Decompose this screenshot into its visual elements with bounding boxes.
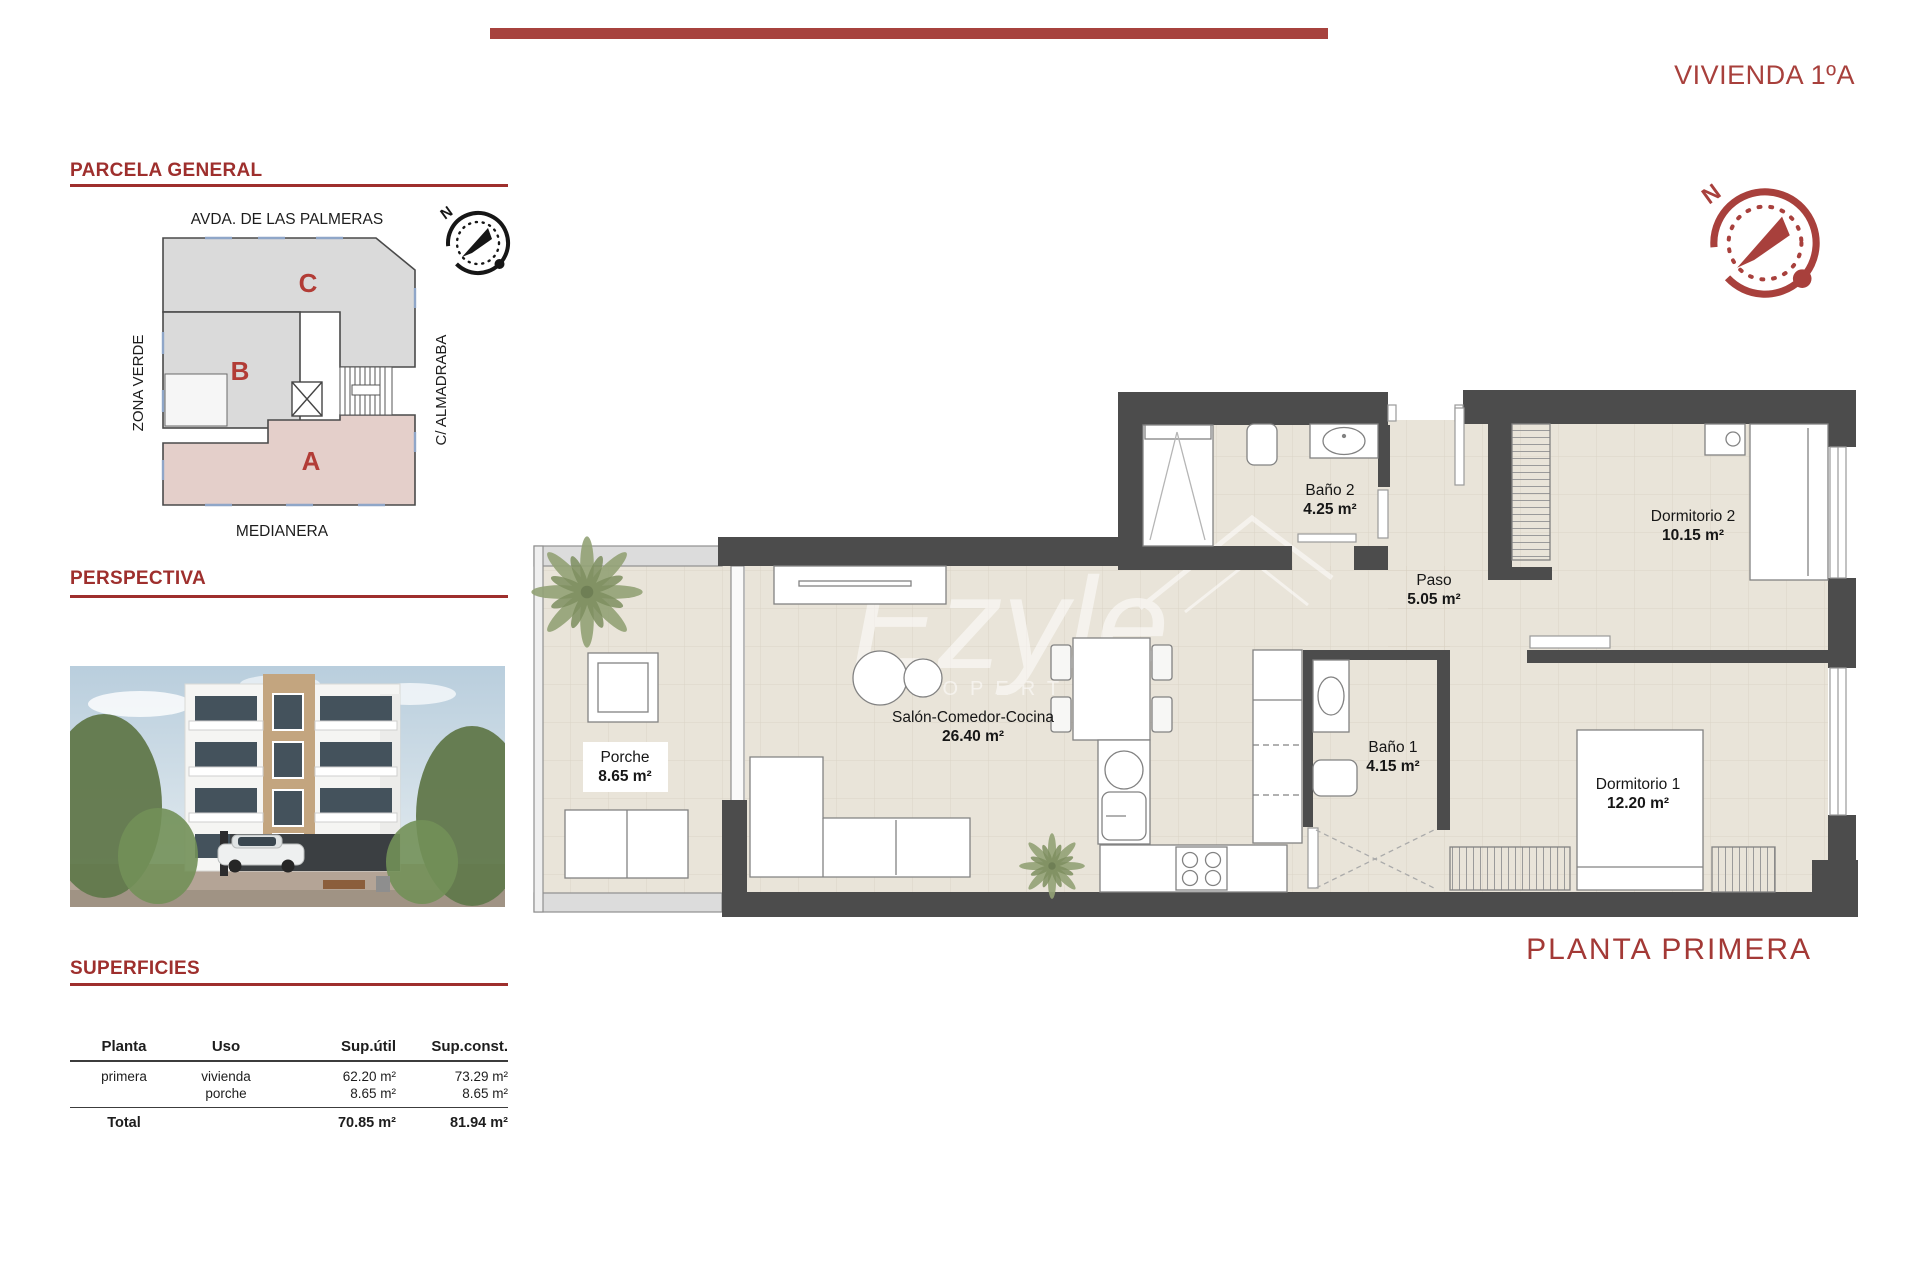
room-area: 8.65 m² xyxy=(598,768,651,785)
door-leaf-bano2 xyxy=(1378,490,1388,538)
site-block-a-label: A xyxy=(302,446,321,476)
site-stairs xyxy=(340,367,392,415)
cell-uso: vivienda xyxy=(178,1068,274,1085)
door-leaf-dorm2 xyxy=(1455,408,1464,485)
kitchen-cabinets xyxy=(1253,650,1302,843)
cell-const: 8.65 m² xyxy=(396,1085,508,1102)
section-title-parcela: PARCELA GENERAL xyxy=(70,160,508,182)
bed-dorm2 xyxy=(1750,424,1828,580)
cell-util: 8.65 m² xyxy=(274,1085,396,1102)
radiator xyxy=(1712,847,1775,892)
washbasin xyxy=(1323,428,1365,455)
cell-total-label: Total xyxy=(70,1115,178,1131)
building-photo xyxy=(70,666,505,907)
site-block-c-label: C xyxy=(299,268,318,298)
table-row: porche 8.65 m² 8.65 m² xyxy=(70,1085,508,1102)
cell-util: 62.20 m² xyxy=(274,1068,396,1085)
site-room-white xyxy=(165,374,227,426)
door-leaf-bano1 xyxy=(1308,828,1318,888)
surface-table-header: Planta Uso Sup.útil Sup.const. xyxy=(70,1038,508,1060)
site-block-b-label: B xyxy=(231,356,250,386)
compass-north-label: N xyxy=(1697,178,1726,209)
section-title-superficies: SUPERFICIES xyxy=(70,958,508,980)
tv xyxy=(799,581,911,586)
room-name: Salón-Comedor-Cocina xyxy=(892,709,1054,726)
section-rule-superficies xyxy=(70,983,508,986)
kitchen-sink xyxy=(1105,751,1143,789)
side-table xyxy=(904,659,942,697)
top-accent-bar xyxy=(490,28,1328,39)
room-area: 4.15 m² xyxy=(1366,758,1419,775)
table-row: primera vivienda 62.20 m² 73.29 m² xyxy=(70,1068,508,1085)
toilet xyxy=(1247,424,1277,465)
toilet xyxy=(1313,760,1357,796)
stove xyxy=(1176,847,1227,890)
room-name: Dormitorio 2 xyxy=(1651,508,1735,525)
wardrobe xyxy=(1512,424,1550,560)
compass-icon: N xyxy=(1693,173,1838,313)
room-name: Paso xyxy=(1416,572,1451,589)
room-area: 26.40 m² xyxy=(942,728,1004,745)
room-area: 10.15 m² xyxy=(1662,527,1724,544)
col-header-uso: Uso xyxy=(178,1038,274,1055)
lamp xyxy=(1726,432,1740,446)
plan-caption: PLANTA PRIMERA xyxy=(1380,933,1812,967)
door-leaf-dorm1 xyxy=(1530,636,1610,648)
site-compass-north-label: N xyxy=(437,203,456,223)
room-area: 5.05 m² xyxy=(1407,591,1460,608)
street-label-left: ZONA VERDE xyxy=(130,335,147,432)
site-compass-icon: N xyxy=(437,203,518,283)
section-rule-perspectiva xyxy=(70,595,508,598)
chair xyxy=(1152,645,1172,680)
room-name: Baño 2 xyxy=(1305,482,1354,499)
radiator xyxy=(1450,847,1570,890)
room-name: Porche xyxy=(600,749,649,766)
site-elevator xyxy=(292,382,322,416)
washbasin xyxy=(1318,677,1344,715)
floor-plan: Ezyle PROPERTIES xyxy=(520,380,1880,940)
palm-tree-large xyxy=(531,536,642,647)
threshold-bano2 xyxy=(1298,534,1356,542)
palm-tree-small xyxy=(1019,833,1085,899)
col-header-planta: Planta xyxy=(70,1038,178,1055)
cell-uso: porche xyxy=(178,1085,274,1102)
coffee-table xyxy=(853,651,907,705)
table-total-row: Total 70.85 m² 81.94 m² xyxy=(70,1108,508,1135)
room-name: Dormitorio 1 xyxy=(1596,776,1680,793)
dining-table xyxy=(1073,638,1150,740)
page-title: VIVIENDA 1ºA xyxy=(1455,60,1855,91)
section-rule-parcela xyxy=(70,184,508,187)
site-plan: C B A AVDA. DE LAS PALMERAS ZONA VERDE C… xyxy=(55,196,520,548)
chair xyxy=(1051,645,1071,680)
col-header-util: Sup.útil xyxy=(274,1038,396,1055)
cell-total-util: 70.85 m² xyxy=(274,1115,396,1131)
cell-total-const: 81.94 m² xyxy=(396,1115,508,1131)
street-label-right: C/ ALMADRABA xyxy=(433,335,450,446)
street-label-bottom: MEDIANERA xyxy=(236,523,329,540)
col-header-const: Sup.const. xyxy=(396,1038,508,1055)
surface-table: Planta Uso Sup.útil Sup.const. primera v… xyxy=(70,1038,508,1135)
room-area: 12.20 m² xyxy=(1607,795,1669,812)
section-title-perspectiva: PERSPECTIVA xyxy=(70,568,508,590)
chair xyxy=(1152,697,1172,732)
room-area: 4.25 m² xyxy=(1303,501,1356,518)
street-label-top: AVDA. DE LAS PALMERAS xyxy=(191,211,383,228)
brochure-page: VIVIENDA 1ºA N PARCELA GENERAL xyxy=(0,0,1920,1280)
chair xyxy=(1051,697,1071,732)
surface-table-body: primera vivienda 62.20 m² 73.29 m² porch… xyxy=(70,1062,508,1107)
cell-planta: primera xyxy=(70,1068,178,1085)
room-name: Baño 1 xyxy=(1368,739,1417,756)
cell-const: 73.29 m² xyxy=(396,1068,508,1085)
